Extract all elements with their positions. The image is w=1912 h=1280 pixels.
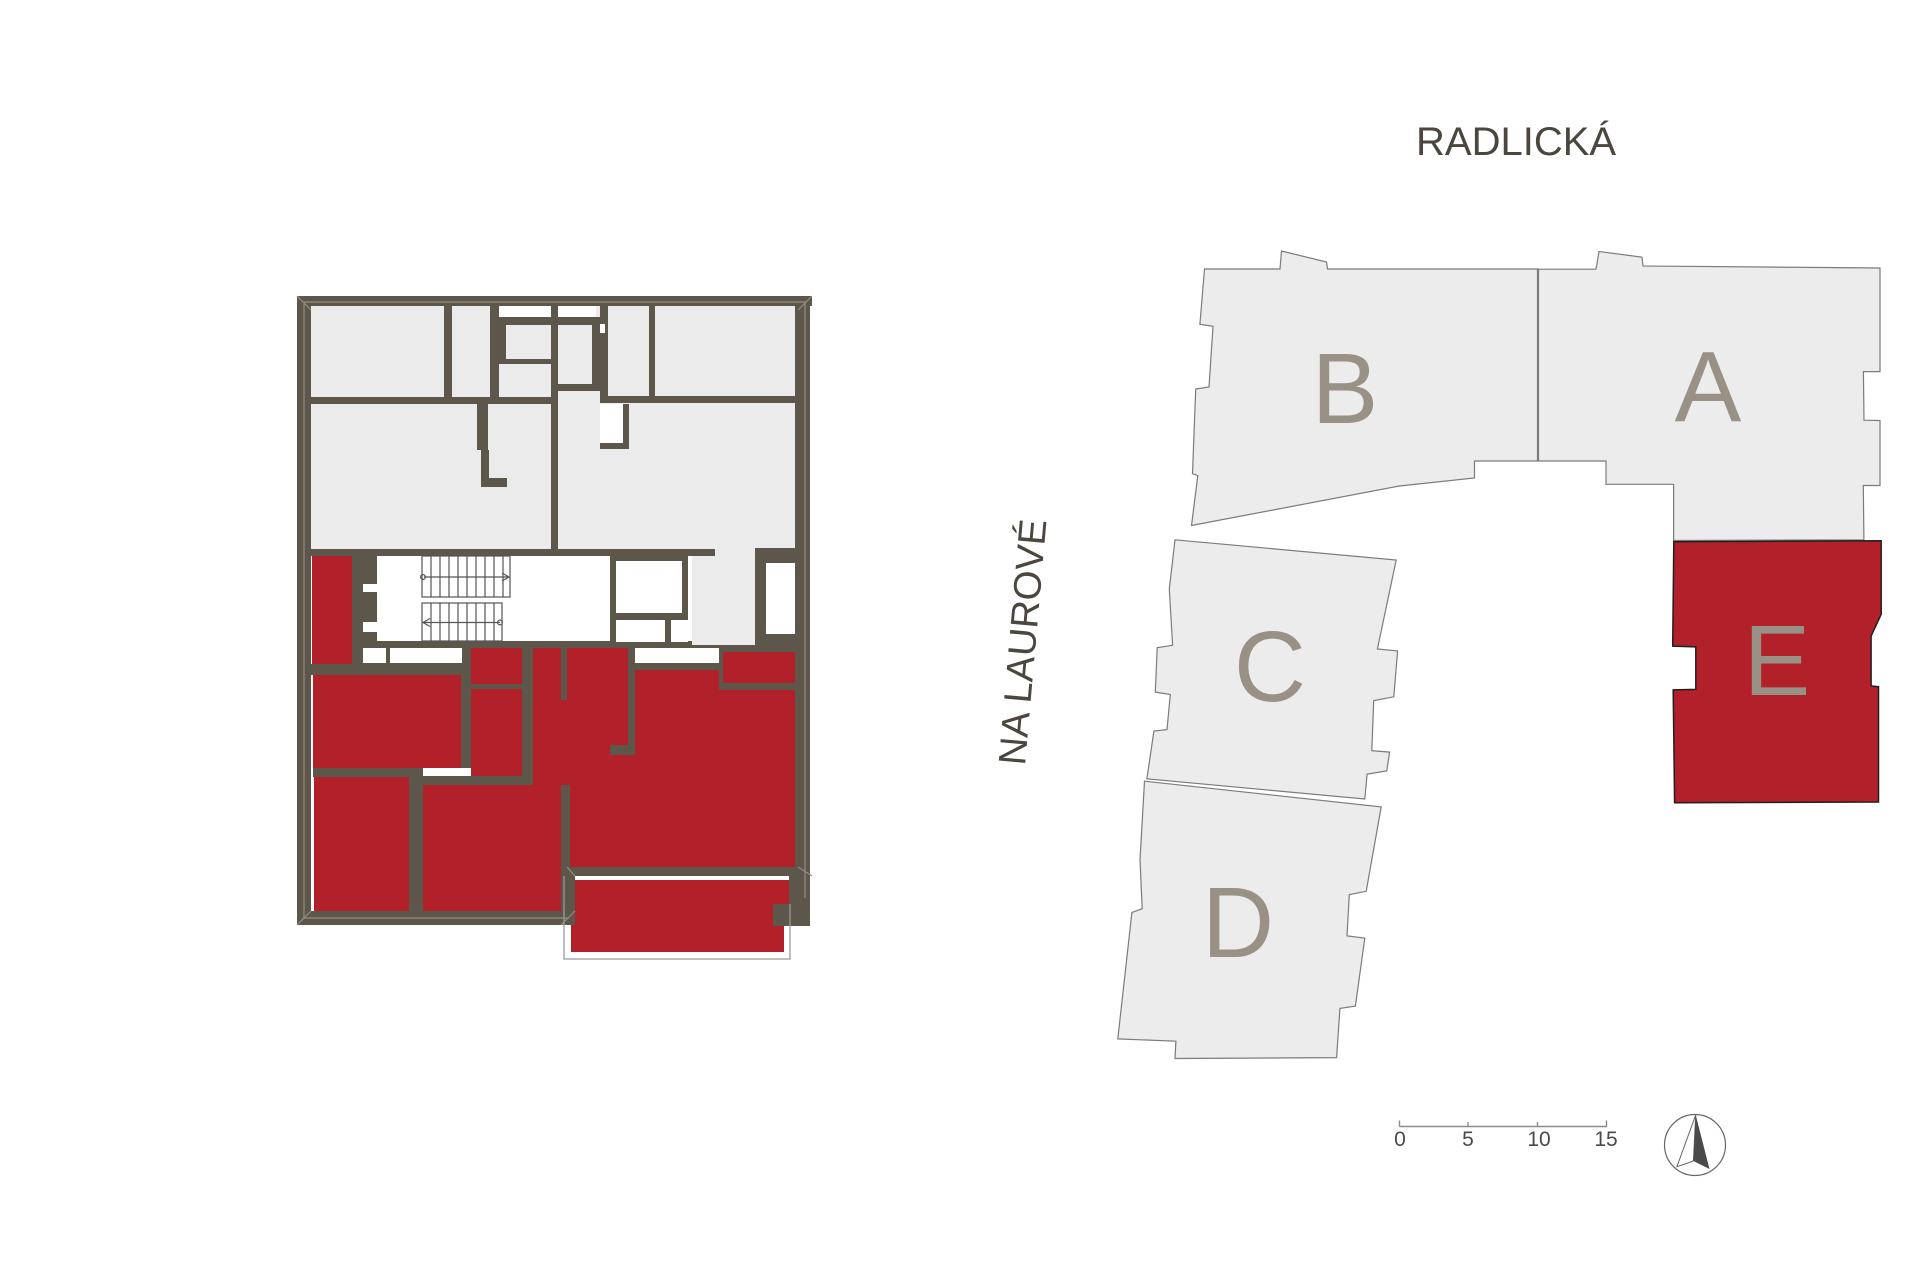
svg-text:D: D xyxy=(1202,867,1274,979)
svg-text:E: E xyxy=(1744,605,1811,717)
svg-text:C: C xyxy=(1234,611,1306,723)
svg-text:15: 15 xyxy=(1594,1128,1617,1151)
svg-text:A: A xyxy=(1675,331,1742,443)
svg-text:B: B xyxy=(1312,333,1379,445)
svg-text:5: 5 xyxy=(1462,1128,1474,1151)
svg-text:0: 0 xyxy=(1394,1128,1406,1151)
svg-text:NA LAUROVÉ: NA LAUROVÉ xyxy=(991,517,1055,766)
svg-text:10: 10 xyxy=(1527,1128,1550,1151)
svg-text:RADLICKÁ: RADLICKÁ xyxy=(1416,119,1616,164)
